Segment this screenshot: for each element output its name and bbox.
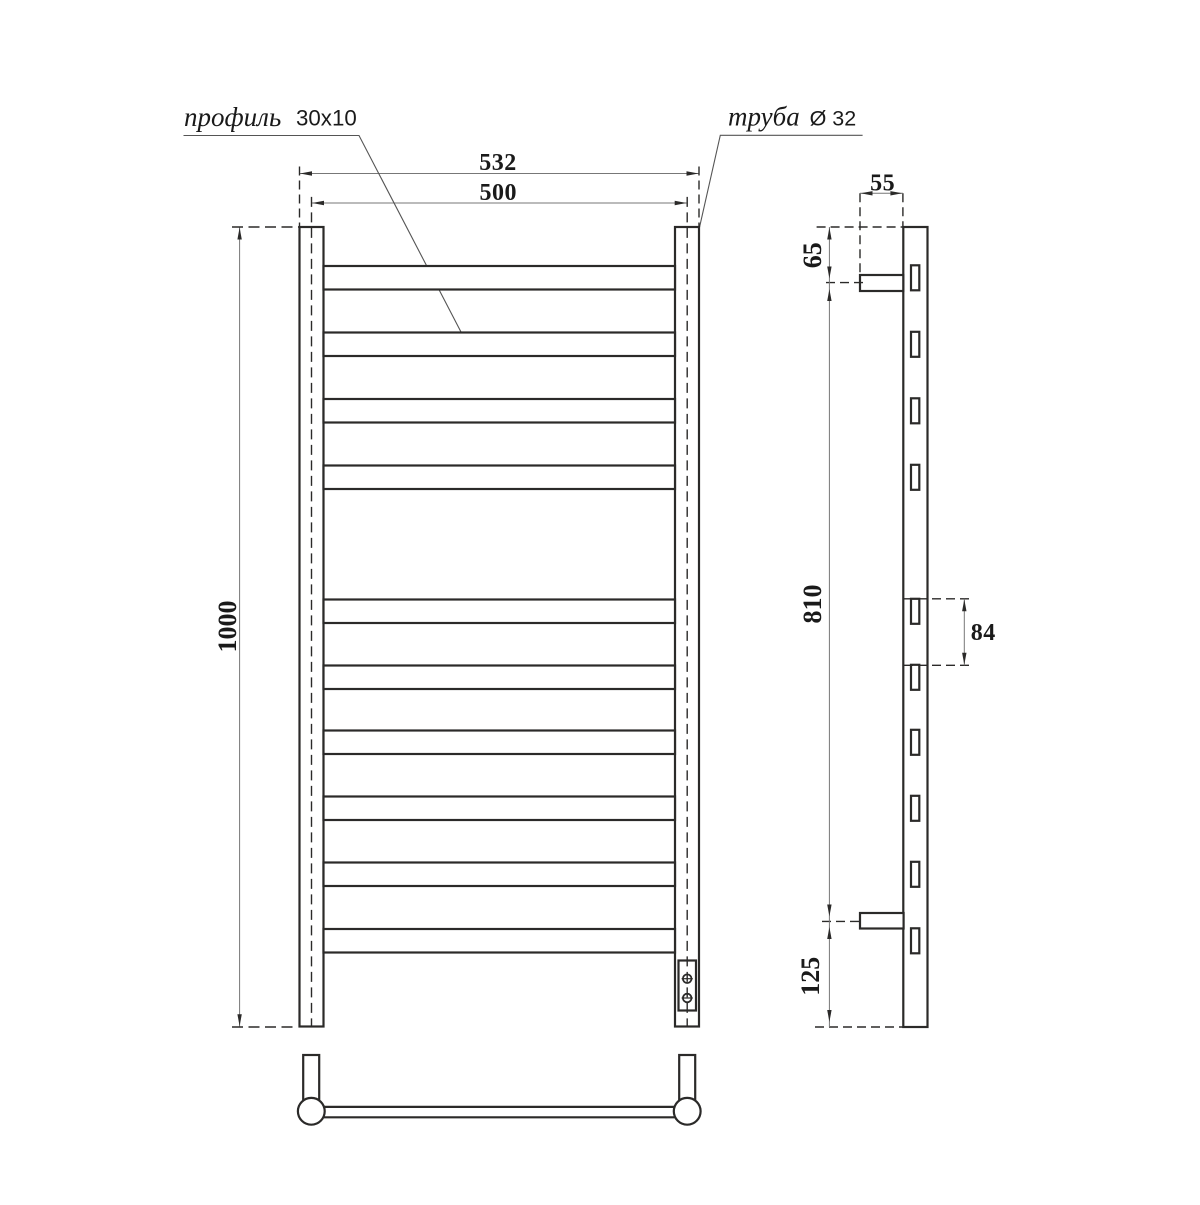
svg-text:532: 532 xyxy=(479,150,517,176)
svg-text:30х10: 30х10 xyxy=(296,106,357,131)
svg-text:65: 65 xyxy=(798,242,827,268)
svg-text:500: 500 xyxy=(480,180,518,206)
svg-text:1000: 1000 xyxy=(213,601,242,653)
svg-text:труба: труба xyxy=(728,102,800,132)
svg-text:профиль: профиль xyxy=(184,102,281,132)
svg-text:Ø 32: Ø 32 xyxy=(810,106,857,130)
svg-text:55: 55 xyxy=(870,171,895,197)
svg-text:810: 810 xyxy=(798,585,827,624)
svg-text:125: 125 xyxy=(796,957,825,996)
svg-text:84: 84 xyxy=(971,620,996,646)
